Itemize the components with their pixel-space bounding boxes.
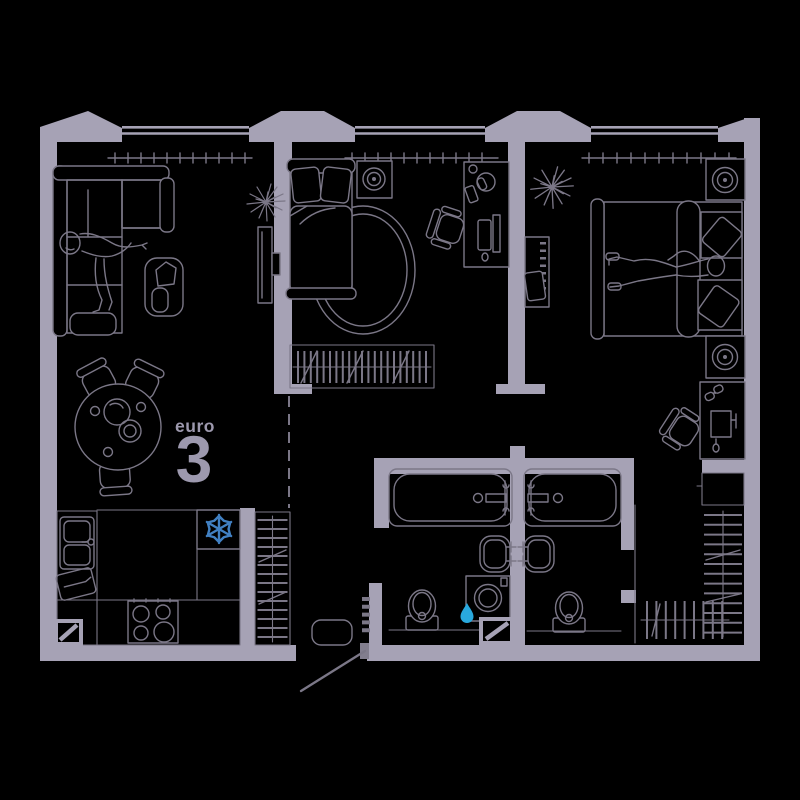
nightstand [357,161,392,198]
fridge [197,510,240,600]
office-chair [655,403,704,455]
plan-room-count: 3 [176,422,213,496]
hall-wardrobe [255,512,290,645]
plan-label: euro 3 [175,416,215,496]
bathroom2-right-wall [621,458,634,550]
right-wall [744,118,760,661]
wardrobe [290,345,434,388]
window [591,127,718,133]
wall-bedroom1-bedroom2 [508,140,525,394]
facade-pillar [249,111,355,142]
radiator [108,153,252,163]
office-chair [424,203,468,251]
kitchen-dining [54,357,240,646]
floor-plan: euro 3 [0,0,800,800]
windows [122,127,718,133]
person-lying [60,232,147,312]
bottom-wall-right [367,645,760,661]
hallway [255,512,366,691]
toilet [406,590,438,630]
desk [464,162,509,267]
shaft [479,617,514,645]
facade-pillar [40,111,122,142]
bedroom-2 [524,159,745,643]
kitchen-cabinet [197,549,240,600]
double-bed [591,199,743,339]
walk-in-closet [635,473,744,643]
dining-table [75,357,165,496]
nightstand-lamp [706,159,745,200]
bottom-wall-left [40,645,296,661]
living-room [53,166,285,336]
toilet [553,592,585,632]
floor-plan-drawing: euro 3 [0,0,800,800]
single-bed [286,159,356,299]
cutting-board [55,567,96,601]
bedroom-1 [286,159,509,388]
window [355,127,485,133]
side-table [145,258,183,316]
shaft [54,619,83,646]
window [122,127,249,133]
tv-cabinet [524,237,549,307]
doormat [312,620,352,645]
wall-cap [496,384,545,394]
wall-cap [274,384,312,394]
nightstand-lamp [706,336,745,378]
bathroom-top-wall [374,458,634,474]
kitchen-counter [54,510,240,646]
closet-top-wall [702,460,746,473]
hall-entry-wall [369,583,382,647]
desk [700,382,745,459]
plant [531,167,574,208]
stove [128,599,178,643]
entrance-door-leaf [301,651,365,691]
facade-pillar [718,118,760,142]
kitchen-sink [60,517,94,569]
wall-stub [621,590,636,603]
bathtub [524,469,621,526]
facade-pillar [485,111,591,142]
hall-closet-wall [240,508,255,648]
bathroom-2 [518,469,621,632]
radiators [108,153,736,163]
bathroom-1 [389,469,516,645]
bathroom1-left-wall [374,458,389,528]
bathtub [389,469,512,526]
